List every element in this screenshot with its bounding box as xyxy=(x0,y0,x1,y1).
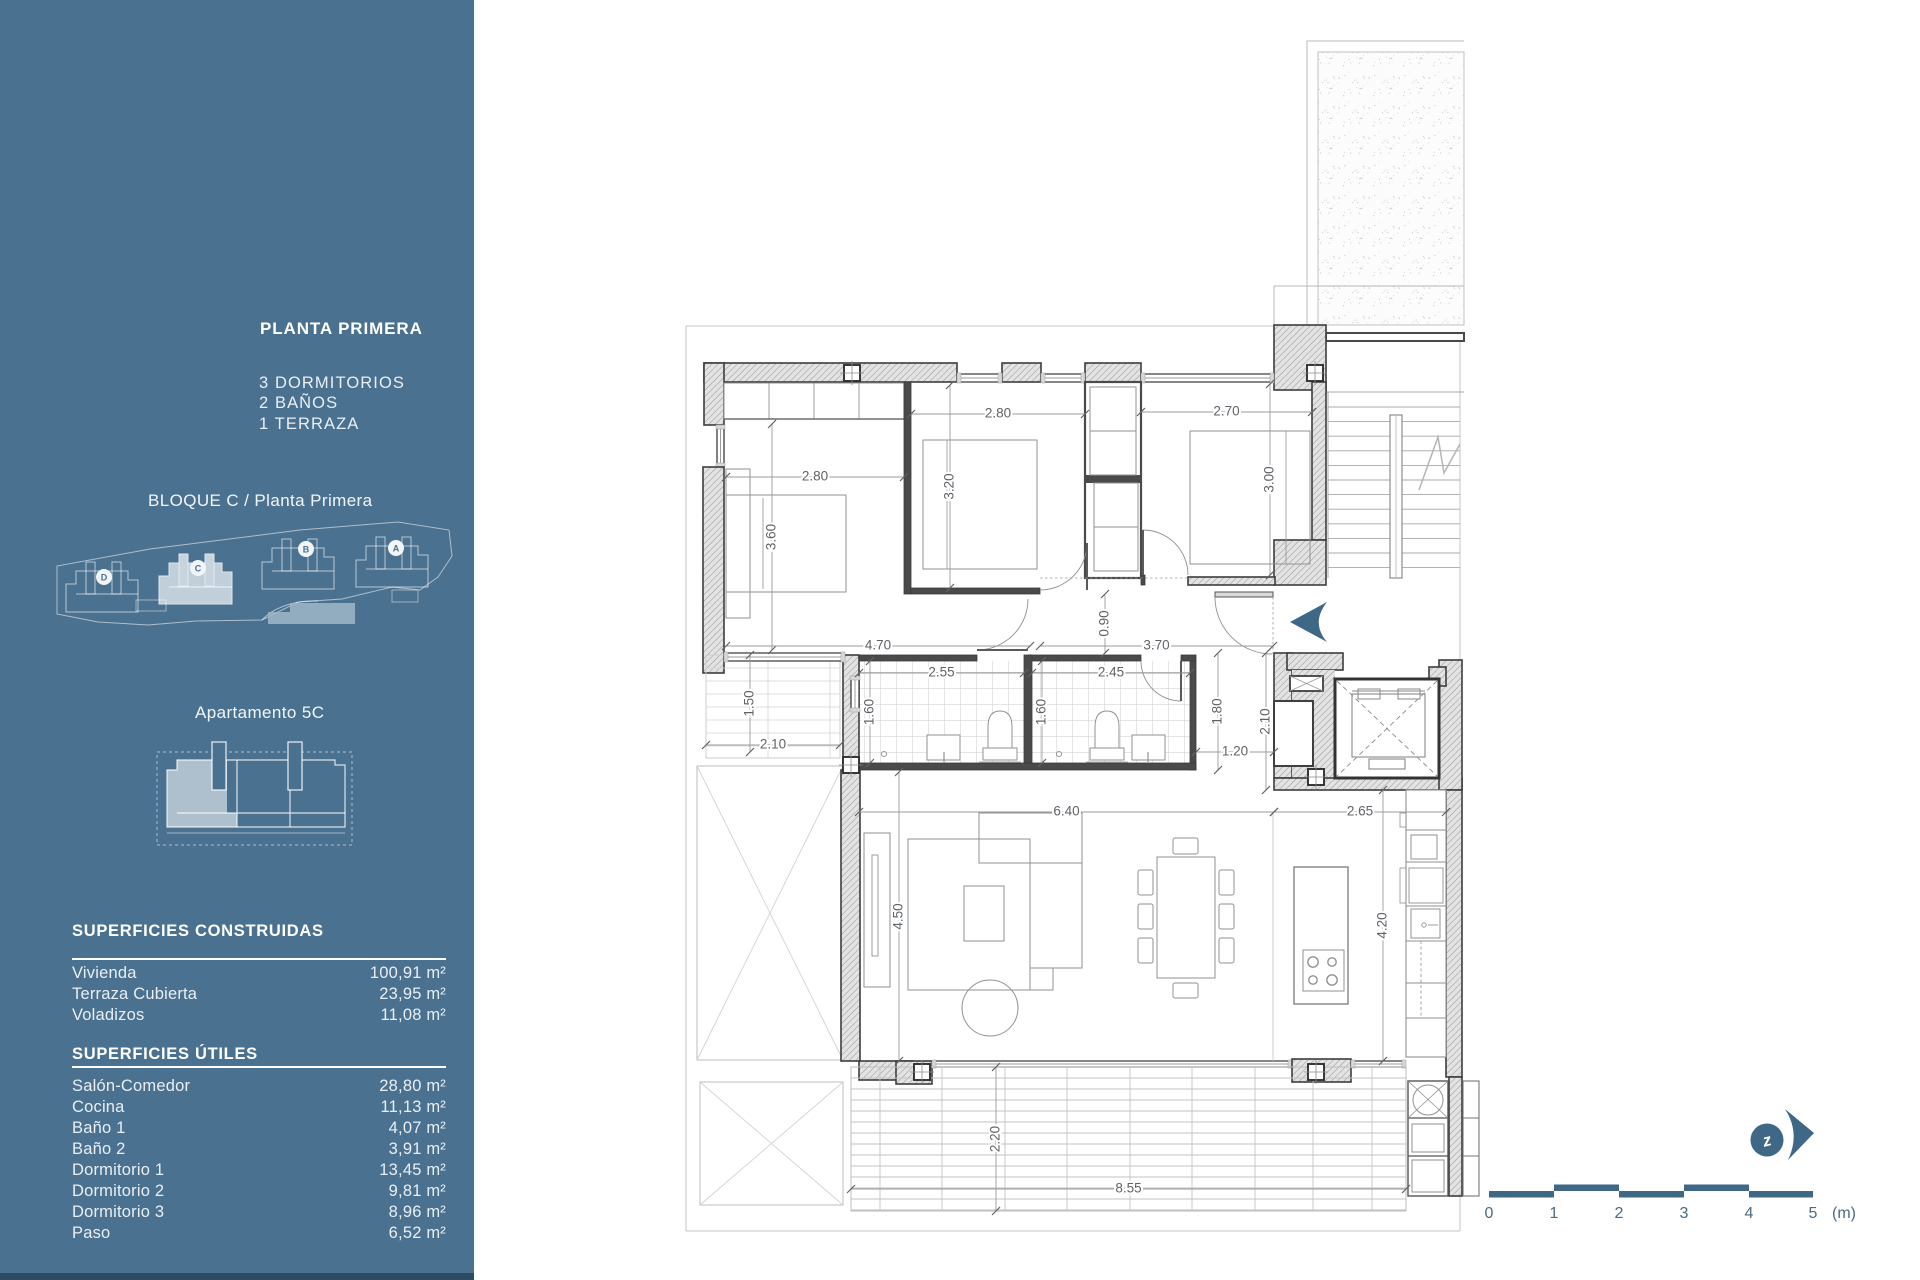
svg-text:2.10: 2.10 xyxy=(1258,708,1273,734)
svg-text:3: 3 xyxy=(1680,1205,1689,1222)
svg-text:1.50: 1.50 xyxy=(742,690,757,716)
svg-text:2.55: 2.55 xyxy=(928,665,954,680)
svg-text:2.20: 2.20 xyxy=(988,1126,1003,1152)
svg-text:2.45: 2.45 xyxy=(1098,665,1124,680)
svg-text:1: 1 xyxy=(1550,1205,1559,1222)
svg-text:3.20: 3.20 xyxy=(942,473,957,499)
svg-text:2: 2 xyxy=(1615,1205,1624,1222)
svg-text:3.00: 3.00 xyxy=(1262,466,1277,492)
svg-text:2.80: 2.80 xyxy=(985,406,1011,421)
svg-text:2.70: 2.70 xyxy=(1213,404,1239,419)
svg-text:4.20: 4.20 xyxy=(1375,912,1390,938)
svg-text:4: 4 xyxy=(1745,1205,1754,1222)
svg-text:1.60: 1.60 xyxy=(1034,699,1049,725)
svg-text:0.90: 0.90 xyxy=(1097,610,1112,636)
svg-text:(m): (m) xyxy=(1832,1205,1856,1222)
svg-text:1.20: 1.20 xyxy=(1222,744,1248,759)
svg-text:8.55: 8.55 xyxy=(1115,1181,1141,1196)
svg-text:1.80: 1.80 xyxy=(1210,698,1225,724)
svg-text:3.70: 3.70 xyxy=(1143,638,1169,653)
svg-text:0: 0 xyxy=(1485,1205,1494,1222)
svg-text:2.65: 2.65 xyxy=(1347,804,1373,819)
svg-text:2.10: 2.10 xyxy=(760,737,786,752)
svg-text:2.80: 2.80 xyxy=(802,469,828,484)
svg-text:4.70: 4.70 xyxy=(865,638,891,653)
svg-text:4.50: 4.50 xyxy=(891,903,906,929)
svg-text:5: 5 xyxy=(1809,1205,1818,1222)
svg-text:1.60: 1.60 xyxy=(862,699,877,725)
svg-text:3.60: 3.60 xyxy=(764,524,779,550)
svg-text:6.40: 6.40 xyxy=(1053,804,1079,819)
